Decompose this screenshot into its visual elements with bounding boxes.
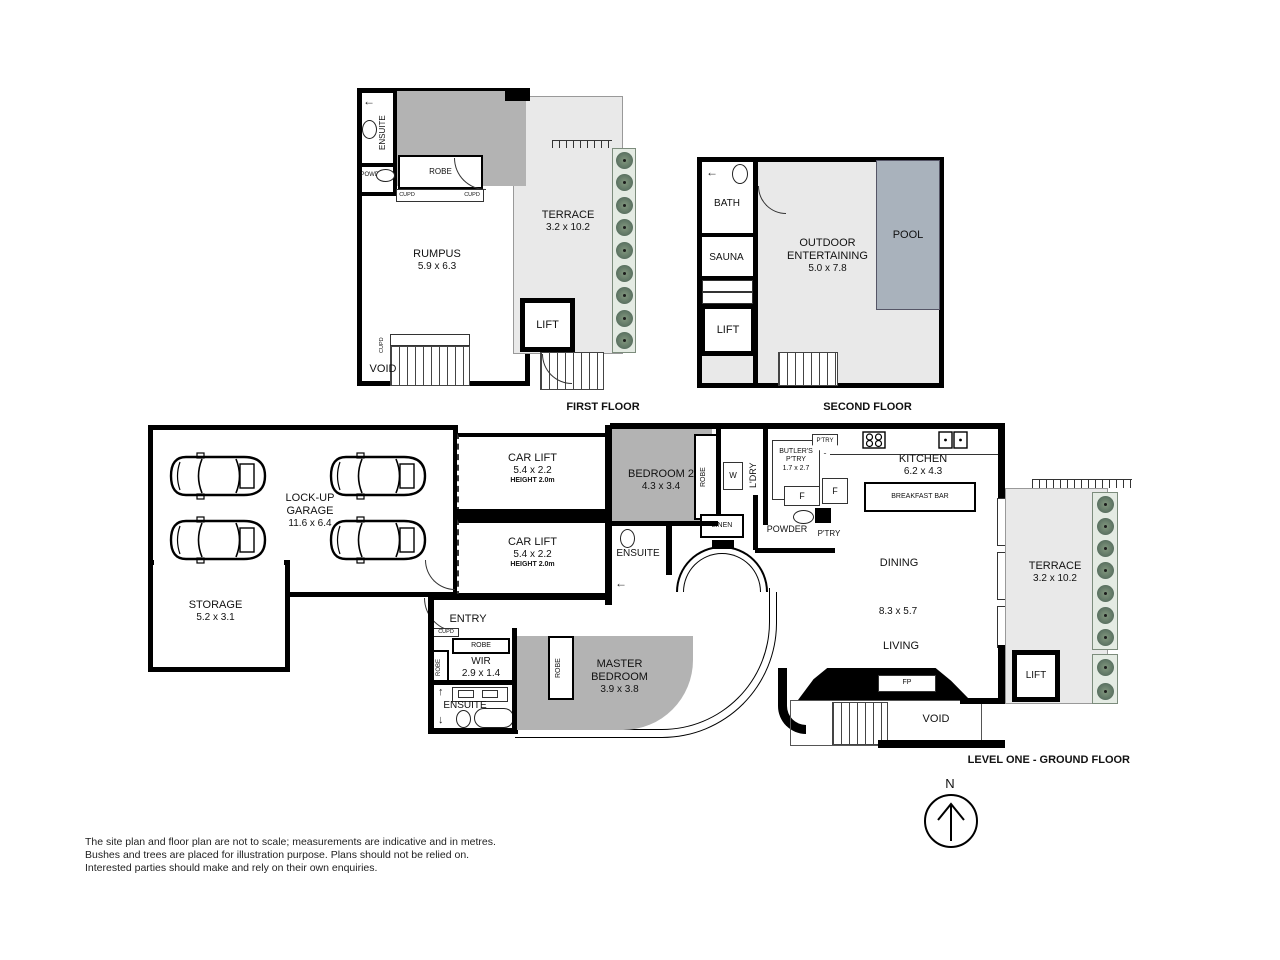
disclaimer-line3: Interested parties should make and rely … <box>85 862 545 875</box>
terrace-name-ff: TERRACE <box>508 209 628 222</box>
garage-dims: 11.6 x 6.4 <box>255 518 365 530</box>
wall <box>357 163 397 167</box>
lift-label-sf: LIFT <box>700 304 756 356</box>
living-label: LIVING <box>870 640 932 653</box>
wall <box>697 233 757 237</box>
dining-label: DINING <box>868 557 930 570</box>
ensuite-bed2-label: ENSUITE <box>608 548 668 560</box>
bush-icon <box>1097 659 1114 676</box>
cooktop-icon <box>862 431 886 449</box>
car-lift-2-dims: 5.4 x 2.2 <box>470 549 595 561</box>
robe-master-label: ROBE <box>555 645 563 691</box>
bench-ff <box>390 334 470 346</box>
ptry-label: P'TRY <box>812 529 846 538</box>
cupd-stair-label: CUPD <box>379 334 385 356</box>
bush-icon <box>616 242 633 259</box>
shower-arrow-up-icon: ↑ <box>438 686 444 698</box>
washer-label: W <box>723 462 743 490</box>
opening <box>154 590 284 599</box>
wall <box>753 495 758 550</box>
bush-icon <box>1097 518 1114 535</box>
terrace-label-ff: TERRACE 3.2 x 10.2 <box>508 209 628 234</box>
wall <box>505 88 530 101</box>
car-lift-2-name: CAR LIFT <box>470 536 595 549</box>
wall <box>763 425 768 525</box>
breakfast-bar-label: BREAKFAST BAR <box>864 482 976 512</box>
toilet-icon <box>732 164 748 184</box>
rumpus-dims: 5.9 x 6.3 <box>377 261 497 273</box>
stairs-sf <box>778 352 838 386</box>
car-lift-2-label: CAR LIFT 5.4 x 2.2 HEIGHT 2.0m <box>470 536 595 569</box>
gf-planter-top <box>1092 492 1118 650</box>
void-label-ff: VOID <box>358 363 408 376</box>
wall <box>716 428 721 520</box>
kitchen-dims: 6.2 x 4.3 <box>868 466 978 478</box>
master-name1: MASTER <box>572 658 667 671</box>
wall <box>998 423 1005 498</box>
shower-arrow-icon: ← <box>363 94 375 108</box>
fridge2-label: F <box>822 478 848 504</box>
robe-wir-top-label: ROBE <box>452 638 510 654</box>
wir-label: WIR 2.9 x 1.4 <box>452 656 510 680</box>
butlers-label: BUTLER'S P'TRY 1.7 x 2.7 <box>772 448 820 473</box>
void-label-gf: VOID <box>908 713 964 726</box>
pool-label: POOL <box>876 229 940 242</box>
disclaimer: The site plan and floor plan are not to … <box>85 836 545 874</box>
ensuite-label-ff: ENSUITE <box>378 105 387 160</box>
wall <box>878 740 1005 748</box>
wall <box>455 509 611 519</box>
linen-label: LINEN <box>700 514 744 538</box>
car-lift-1-label: CAR LIFT 5.4 x 2.2 HEIGHT 2.0m <box>470 452 595 485</box>
cupd-right-label: CUPD <box>462 192 482 198</box>
ground-floor-title: LEVEL ONE - GROUND FLOOR <box>935 754 1130 767</box>
outdoor-dims: 5.0 x 7.8 <box>765 263 890 275</box>
bush-icon <box>616 287 633 304</box>
outdoor-name1: OUTDOOR <box>765 237 890 250</box>
bush-icon <box>1097 607 1114 624</box>
fridge1-label: F <box>784 486 820 506</box>
bush-icon <box>1097 496 1114 513</box>
sauna-bench <box>702 292 753 304</box>
north-label: N <box>942 776 958 791</box>
wall <box>428 728 518 734</box>
bush-icon <box>1097 629 1114 646</box>
bush-icon <box>616 332 633 349</box>
cupd-entry-label: CUPD <box>433 629 459 635</box>
fireplace-label: FP <box>878 675 936 692</box>
sink-icon <box>938 430 968 450</box>
garage-name1: LOCK-UP <box>255 492 365 505</box>
toilet-icon <box>793 510 814 524</box>
wir-name: WIR <box>452 656 510 668</box>
car-lift-1-name: CAR LIFT <box>470 452 595 465</box>
wall <box>430 680 515 685</box>
outdoor-label: OUTDOOR ENTERTAINING 5.0 x 7.8 <box>765 237 890 275</box>
bush-icon <box>1097 562 1114 579</box>
cupd-left-label: CUPD <box>397 192 417 198</box>
lift-label-ff: LIFT <box>520 298 575 352</box>
shower-arrow-down-icon: ↓ <box>438 714 444 726</box>
powder-gf-label: POWDER <box>758 524 816 535</box>
rumpus-label: RUMPUS 5.9 x 6.3 <box>377 248 497 273</box>
storage-label: STORAGE 5.2 x 3.1 <box>163 599 268 624</box>
butlers-name2: P'TRY <box>772 456 820 464</box>
wall <box>357 192 399 196</box>
robe-bed2-label: ROBE <box>700 450 708 505</box>
master-name2: BEDROOM <box>572 671 667 684</box>
rumpus-name: RUMPUS <box>377 248 497 261</box>
butlers-dims: 1.7 x 2.7 <box>772 465 820 473</box>
bush-icon <box>616 174 633 191</box>
toilet-icon <box>362 120 377 139</box>
kitchen-label: KITCHEN 6.2 x 4.3 <box>868 453 978 478</box>
kitchen-name: KITCHEN <box>868 453 978 466</box>
master-label: MASTER BEDROOM 3.9 x 3.8 <box>572 658 667 696</box>
bush-icon <box>616 265 633 282</box>
storage-dims: 5.2 x 3.1 <box>163 612 268 624</box>
bush-icon <box>616 152 633 169</box>
bush-icon <box>1097 585 1114 602</box>
wall <box>815 508 831 523</box>
ptry-small-label: P'TRY <box>812 438 838 445</box>
garage-label: LOCK-UP GARAGE 11.6 x 6.4 <box>255 492 365 530</box>
storage-name: STORAGE <box>163 599 268 612</box>
wall <box>712 540 734 549</box>
basin <box>482 690 498 698</box>
gf-planter-bottom <box>1092 654 1118 704</box>
wall <box>605 425 612 605</box>
second-floor-title: SECOND FLOOR <box>815 401 920 414</box>
wir-dims: 2.9 x 1.4 <box>452 668 510 680</box>
bush-icon <box>1097 683 1114 700</box>
robe-wir-side-label: ROBE <box>436 652 443 682</box>
butlers-name1: BUTLER'S <box>772 448 820 456</box>
floorplan-page: { "colors": { "wall":"#000000", "bedroom… <box>0 0 1280 960</box>
first-floor-title: FIRST FLOOR <box>548 401 658 414</box>
basin <box>458 690 474 698</box>
first-floor-planter <box>612 148 636 353</box>
living-dims-label: 8.3 x 5.7 <box>862 606 934 618</box>
garage-name2: GARAGE <box>255 505 365 518</box>
bush-icon <box>1097 540 1114 557</box>
car-lift-1-dims: 5.4 x 2.2 <box>470 465 595 477</box>
disclaimer-line2: Bushes and trees are placed for illustra… <box>85 849 545 862</box>
car-lift-2-height: HEIGHT 2.0m <box>470 561 595 569</box>
sauna-bench <box>702 280 753 292</box>
stairs-gf <box>832 702 888 745</box>
sauna-label: SAUNA <box>699 252 754 264</box>
bush-icon <box>616 310 633 327</box>
bath-label: BATH <box>702 198 752 210</box>
bathtub <box>474 708 514 728</box>
toilet-icon <box>456 710 471 728</box>
shower-arrow-icon: ← <box>706 165 718 179</box>
toilet-icon <box>376 169 395 182</box>
north-arrow-icon <box>923 793 979 849</box>
wall <box>998 645 1005 703</box>
outdoor-name2: ENTERTAINING <box>765 250 890 263</box>
first-floor-roof-edge <box>552 140 612 148</box>
entry-label: ENTRY <box>438 613 498 626</box>
disclaimer-line1: The site plan and floor plan are not to … <box>85 836 545 849</box>
gf-roof-edge <box>1032 479 1132 488</box>
toilet-icon <box>620 529 635 548</box>
car-lift-1-height: HEIGHT 2.0m <box>470 477 595 485</box>
lift-gf-label: LIFT <box>1012 650 1060 702</box>
master-dims: 3.9 x 3.8 <box>572 684 667 696</box>
wall <box>755 548 835 553</box>
wall <box>606 521 718 526</box>
terrace-dims-ff: 3.2 x 10.2 <box>508 222 628 234</box>
